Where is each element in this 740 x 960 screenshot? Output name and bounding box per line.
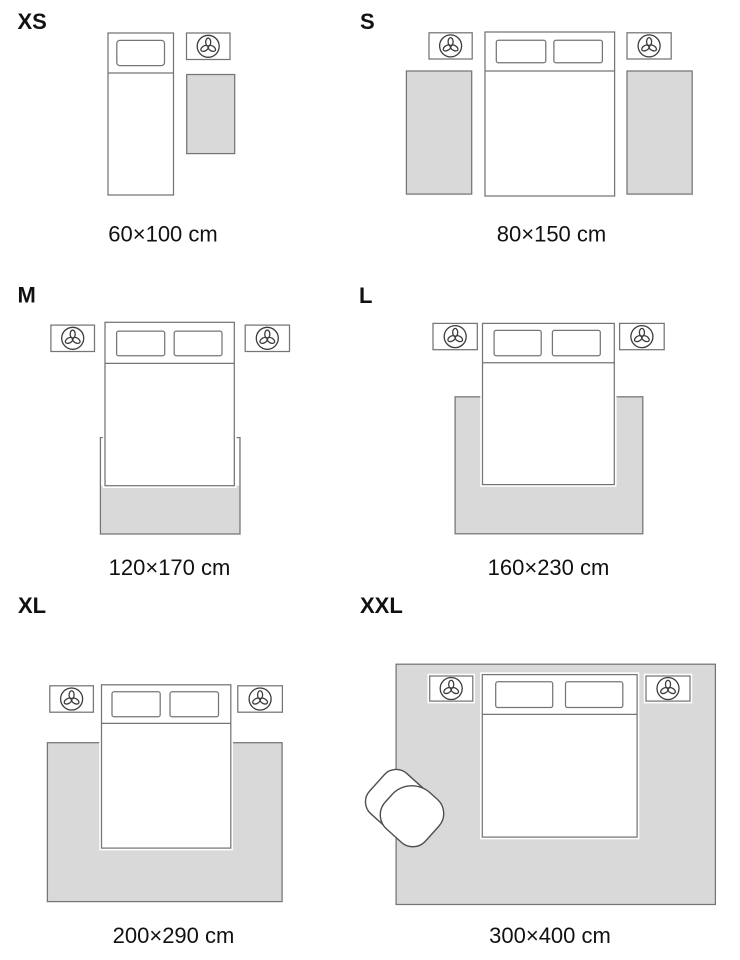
svg-text:160×230 cm: 160×230 cm — [488, 555, 610, 580]
svg-text:L: L — [359, 283, 372, 308]
svg-text:XXL: XXL — [360, 593, 403, 618]
svg-text:M: M — [18, 283, 36, 308]
svg-text:S: S — [360, 9, 375, 34]
svg-text:60×100 cm: 60×100 cm — [108, 222, 217, 247]
svg-text:120×170 cm: 120×170 cm — [109, 555, 231, 580]
svg-text:XL: XL — [18, 593, 46, 618]
svg-text:XS: XS — [18, 9, 47, 34]
svg-text:80×150 cm: 80×150 cm — [497, 222, 606, 247]
svg-text:200×290 cm: 200×290 cm — [113, 923, 235, 948]
svg-text:300×400 cm: 300×400 cm — [489, 923, 611, 948]
